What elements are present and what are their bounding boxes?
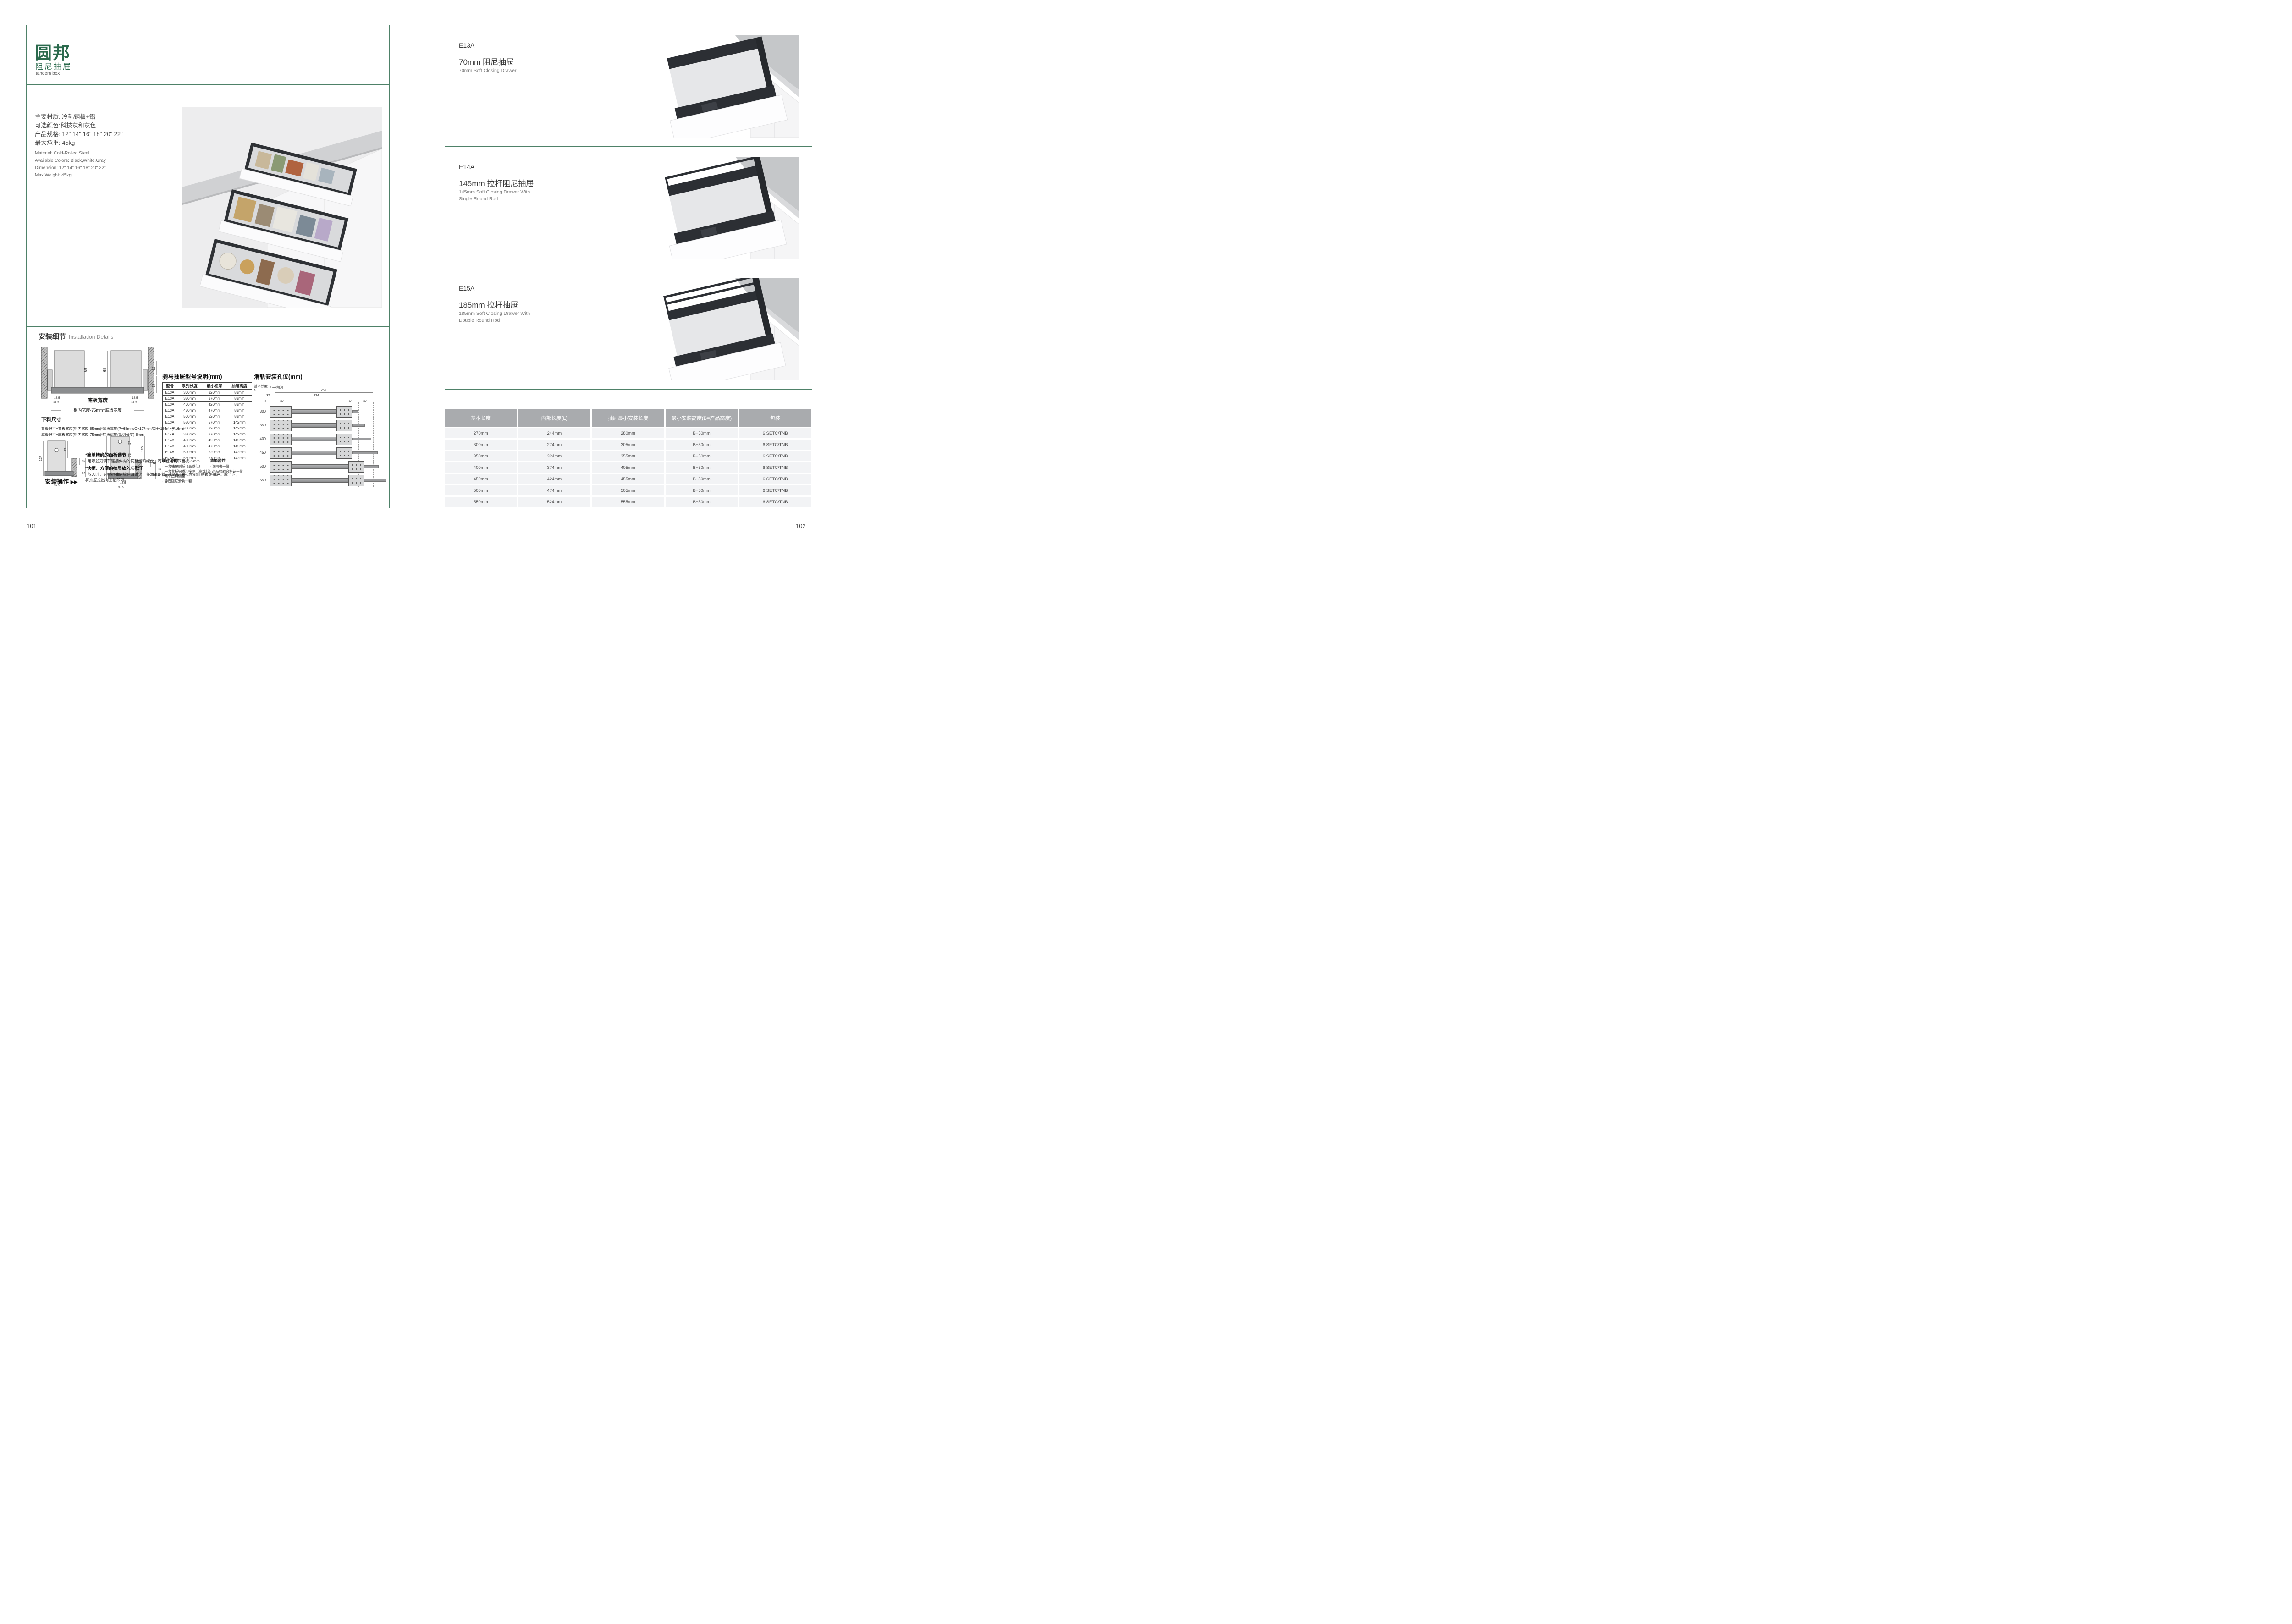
- dim-57: 57: [128, 441, 132, 445]
- install-title-zh: 安装细节: [39, 333, 66, 341]
- table-row: E14A 500mm 520mm 142mm: [163, 449, 252, 455]
- cell-min-install-height: B+50mm: [666, 440, 738, 450]
- cell-depth: 520mm: [202, 413, 227, 419]
- cell-basic-length: 400mm: [445, 462, 517, 473]
- rail-extension: [352, 410, 358, 413]
- table-row: 300mm 274mm 305mm B+50mm 6 SETC/TNB: [445, 440, 811, 450]
- dim-37-5-left: 37.5: [53, 401, 59, 404]
- dim-256: 256: [321, 389, 326, 392]
- spec-table-header: 基本长度 内部长度(L) 抽屉最小安装长度 最小安装高度(B=产品高度) 包装: [445, 409, 811, 427]
- section-divider: [27, 326, 389, 327]
- section-title-zh: 185mm 拉杆抽屉: [459, 298, 518, 310]
- section-title-zh: 70mm 阻尼抽屉: [459, 55, 514, 67]
- cell-depth: 470mm: [202, 407, 227, 413]
- cell-basic-length: 500mm: [445, 485, 517, 495]
- cell-inner-length: 274mm: [518, 440, 591, 450]
- dim-37: 37: [266, 394, 270, 397]
- model-code: E15A: [459, 285, 474, 292]
- spec-line: Dimension: 12" 14" 16" 18" 20" 22": [35, 165, 106, 172]
- cell-height: 142mm: [227, 443, 252, 449]
- cell-depth: 470mm: [202, 443, 227, 449]
- cell-inner-length: 324mm: [518, 451, 591, 461]
- dim-line-256: [275, 392, 373, 393]
- dim-127: 127: [39, 456, 43, 461]
- front-bracket: [270, 447, 292, 459]
- cell-packing: 6 SETC/TNB: [739, 485, 811, 495]
- product-photo-e15a: [641, 278, 799, 380]
- cell-packing: 6 SETC/TNB: [739, 440, 811, 450]
- table-row: E14A 300mm 320mm 142mm: [163, 425, 252, 431]
- cabinet-front-edge-label: 柜子前沿: [270, 385, 283, 390]
- accessories-title: 装箱附件: [210, 458, 256, 463]
- specs-zh: 主要材质: 冷轧钢板+铝 可选颜色:科技灰和灰色 产品规格: 12" 14" 1…: [35, 112, 123, 147]
- install-title-en: Installation Details: [69, 334, 113, 340]
- table-row: 550mm 524mm 555mm B+50mm 6 SETC/TNB: [445, 497, 811, 507]
- rail-extension: [352, 451, 378, 454]
- cell-height: 142mm: [227, 419, 252, 425]
- spec-line: 可选颜色:科技灰和灰色: [35, 121, 123, 130]
- cell-min-install-height: B+50mm: [666, 451, 738, 461]
- rail-axis-label: 基本长度 N L: [254, 384, 268, 392]
- model-table-title: 骑马抽屉型号说明(mm): [162, 372, 252, 380]
- cell-depth: 320mm: [202, 425, 227, 431]
- spec-line: 产品规格: 12" 14" 16" 18" 20" 22": [35, 130, 123, 138]
- dim-54: 54: [152, 383, 156, 387]
- cell-height: 83mm: [227, 413, 252, 419]
- cell-model: E14A: [163, 431, 177, 437]
- rail-row-350: 350: [254, 419, 389, 433]
- dim-46: 46: [38, 380, 39, 385]
- list-item: · 一套背板钢质连接件（高或低）: [162, 469, 213, 474]
- cell-model: E13A: [163, 407, 177, 413]
- rail-diagram-title: 滑轨安装孔位(mm): [254, 372, 389, 380]
- section-title-en: 70mm Soft Closing Drawer: [459, 67, 516, 74]
- dim-16-5-left: 16.5: [54, 396, 60, 400]
- table-row: E14A 450mm 470mm 142mm: [163, 443, 252, 449]
- cell-packing: 6 SETC/TNB: [739, 462, 811, 473]
- cell-model: E13A: [163, 390, 177, 396]
- col-header: 最小柜深: [202, 383, 227, 390]
- dim-68-left: 68: [83, 368, 88, 372]
- col-header: 系列长度: [177, 383, 202, 390]
- cell-basic-length: 300mm: [445, 440, 517, 450]
- table-row: E13A 500mm 520mm 83mm: [163, 413, 252, 419]
- cell-packing: 6 SETC/TNB: [739, 451, 811, 461]
- rail-row-300: 300: [254, 405, 389, 419]
- cell-min-install-height: B+50mm: [666, 428, 738, 438]
- model-code: E13A: [459, 42, 474, 49]
- cell-model: E13A: [163, 419, 177, 425]
- spec-table: 基本长度 内部长度(L) 抽屉最小安装长度 最小安装高度(B=产品高度) 包装 …: [445, 409, 811, 508]
- list-item: · 两个塑料侧盖: [162, 474, 213, 479]
- dim-77: 77: [64, 448, 67, 451]
- model-code: E14A: [459, 163, 474, 171]
- dim-line-224: [275, 398, 358, 398]
- cell-basic-length: 450mm: [445, 474, 517, 484]
- page-number-left: 101: [27, 523, 37, 529]
- table-row: E13A 400mm 420mm 83mm: [163, 402, 252, 407]
- cell-height: 142mm: [227, 431, 252, 437]
- list-item: · 说明书一份: [210, 464, 256, 469]
- rear-bracket: [336, 406, 352, 418]
- spec-line: 主要材质: 冷轧钢板+铝: [35, 112, 123, 121]
- cell-min-install-length: 280mm: [592, 428, 664, 438]
- rear-bracket: [336, 447, 352, 459]
- product-photo-cabinet: [182, 107, 382, 308]
- cell-basic-length: 350mm: [445, 451, 517, 461]
- page-right: E13A 70mm 阻尼抽屉 70mm Soft Closing Drawer: [445, 25, 812, 390]
- cell-length: 350mm: [177, 396, 202, 402]
- cell-inner-length: 374mm: [518, 462, 591, 473]
- install-title: 安装细节Installation Details: [39, 331, 113, 341]
- section-title-zh: 145mm 拉杆阻尼抽屉: [459, 177, 534, 188]
- cell-min-install-height: B+50mm: [666, 474, 738, 484]
- col-header: 内部长度(L): [518, 409, 591, 427]
- cell-inner-length: 524mm: [518, 497, 591, 507]
- operation-arrows-icon: ▶▶: [71, 479, 77, 485]
- accessories-block: 装箱附件 · 说明书一份 · 产品检验合格证一份: [210, 458, 256, 474]
- rail-bar: [291, 464, 349, 469]
- cell-length: 350mm: [177, 431, 202, 437]
- col-header: 包装: [739, 409, 811, 427]
- brand-subtitle: 阻尼抽屉: [35, 60, 72, 72]
- cell-height: 83mm: [227, 396, 252, 402]
- cell-model: E13A: [163, 402, 177, 407]
- front-bracket: [270, 461, 292, 473]
- cell-inner-length: 424mm: [518, 474, 591, 484]
- cell-min-install-length: 355mm: [592, 451, 664, 461]
- rail-row-500: 500: [254, 460, 389, 474]
- rear-bracket: [336, 420, 352, 431]
- dim-32: 32: [363, 400, 367, 403]
- model-table-header-row: 型号 系列长度 最小柜深 抽屉高度: [163, 383, 252, 390]
- cell-length: 400mm: [177, 402, 202, 407]
- cell-length: 500mm: [177, 449, 202, 455]
- cell-length: 300mm: [177, 390, 202, 396]
- rail-extension: [364, 479, 386, 482]
- rail-row-400: 400: [254, 433, 389, 446]
- dim-9: 9: [264, 400, 266, 403]
- cell-depth: 370mm: [202, 431, 227, 437]
- table-row: E13A 350mm 370mm 83mm: [163, 396, 252, 402]
- cell-basic-length: 550mm: [445, 497, 517, 507]
- cell-packing: 6 SETC/TNB: [739, 474, 811, 484]
- dim-37-5: 37.5: [118, 486, 124, 489]
- section-title-en: 185mm Soft Closing Drawer With Double Ro…: [459, 310, 530, 324]
- list-item: · 静音阻尼滑轨一套: [162, 479, 213, 484]
- dim-224: 224: [314, 394, 319, 397]
- col-header: 最小安装高度(B=产品高度): [666, 409, 738, 427]
- rail-bar: [291, 423, 337, 428]
- cell-model: E14A: [163, 449, 177, 455]
- cell-min-install-height: B+50mm: [666, 485, 738, 495]
- cell-min-install-height: B+50mm: [666, 497, 738, 507]
- cell-min-install-length: 505mm: [592, 485, 664, 495]
- page-left: 圆邦 阻尼抽屉 tandem box 主要材质: 冷轧钢板+铝 可选颜色:科技灰…: [26, 25, 390, 508]
- rail-extension: [364, 465, 379, 468]
- cell-length: 400mm: [177, 437, 202, 443]
- table-row: E13A 300mm 320mm 83mm: [163, 390, 252, 396]
- col-header: 抽屉高度: [227, 383, 252, 390]
- table-row: E13A 550mm 570mm 142mm: [163, 419, 252, 425]
- model-table-block: 骑马抽屉型号说明(mm) 型号 系列长度 最小柜深 抽屉高度 E13A 300m…: [162, 372, 252, 461]
- rail-extension: [352, 424, 365, 427]
- cell-inner-length: 474mm: [518, 485, 591, 495]
- cell-min-install-height: B+50mm: [666, 462, 738, 473]
- spec-line: Available Colors: Black,White,Gray: [35, 157, 106, 165]
- dim-32: 32: [152, 366, 156, 370]
- product-photo-e13a: [641, 35, 799, 138]
- header-divider: [27, 84, 389, 85]
- cell-depth: 370mm: [202, 396, 227, 402]
- cell-model: E13A: [163, 396, 177, 402]
- components-title: 组件说明: [162, 458, 213, 463]
- cell-depth: 420mm: [202, 437, 227, 443]
- dim-37-5-right: 37.5: [131, 401, 137, 404]
- rail-bar: [291, 409, 337, 414]
- cell-depth: 570mm: [202, 419, 227, 425]
- cell-depth: 520mm: [202, 449, 227, 455]
- cell-min-install-length: 405mm: [592, 462, 664, 473]
- dim-68-right: 68: [103, 368, 107, 372]
- table-row: E14A 350mm 370mm 142mm: [163, 431, 252, 437]
- section-e13a: E13A 70mm 阻尼抽屉 70mm Soft Closing Drawer: [445, 25, 812, 146]
- col-header: 型号: [163, 383, 177, 390]
- cross-section-diagram: 68 68 46 32 54 16.5 37.5 16.5 37.5 底板宽度 …: [38, 343, 158, 416]
- table-row: E14A 400mm 420mm 142mm: [163, 437, 252, 443]
- table-row: 400mm 374mm 405mm B+50mm 6 SETC/TNB: [445, 462, 811, 473]
- page-number-right: 102: [796, 523, 806, 529]
- cell-height: 142mm: [227, 449, 252, 455]
- spec-line: Material: Cold-Rolled Steel: [35, 150, 106, 157]
- cell-length: 500mm: [177, 413, 202, 419]
- list-item: · 产品检验合格证一份: [210, 469, 256, 474]
- cell-length: 300mm: [177, 425, 202, 431]
- table-row: 450mm 424mm 455mm B+50mm 6 SETC/TNB: [445, 474, 811, 484]
- brand-subtitle-en: tandem box: [36, 71, 60, 76]
- front-bracket: [270, 475, 292, 486]
- spec-line: Max Weight: 45kg: [35, 172, 106, 179]
- list-item: · 一套抽屉侧板（高或低）: [162, 464, 213, 469]
- cell-min-install-length: 305mm: [592, 440, 664, 450]
- cell-model: E14A: [163, 425, 177, 431]
- cell-model: E14A: [163, 443, 177, 449]
- bottom-plate-label: 底板宽度: [88, 397, 108, 403]
- dim-16-5-right: 16.5: [132, 396, 138, 400]
- cell-depth: 320mm: [202, 390, 227, 396]
- cell-height: 83mm: [227, 407, 252, 413]
- dim-32: 32: [280, 400, 284, 403]
- cell-depth: 420mm: [202, 402, 227, 407]
- rail-bar: [291, 478, 349, 483]
- cell-height: 142mm: [227, 425, 252, 431]
- model-table: 型号 系列长度 最小柜深 抽屉高度 E13A 300mm 320mm 83mm …: [162, 382, 252, 461]
- section-title-en: 145mm Soft Closing Drawer With Single Ro…: [459, 189, 530, 203]
- section-e15a: E15A 185mm 拉杆抽屉 185mm Soft Closing Drawe…: [445, 268, 812, 389]
- rear-bracket: [336, 434, 352, 445]
- cell-inner-length: 244mm: [518, 428, 591, 438]
- cell-min-install-length: 555mm: [592, 497, 664, 507]
- table-row: 270mm 244mm 280mm B+50mm 6 SETC/TNB: [445, 428, 811, 438]
- product-photo-e14a: [641, 157, 799, 259]
- rail-bar: [291, 437, 337, 441]
- table-row: E13A 450mm 470mm 83mm: [163, 407, 252, 413]
- catalog-spread: 圆邦 阻尼抽屉 tandem box 主要材质: 冷轧钢板+铝 可选颜色:科技灰…: [0, 0, 830, 541]
- width-formula-label: 柜内宽度-75mm=底板宽度: [73, 407, 121, 413]
- cell-packing: 6 SETC/TNB: [739, 428, 811, 438]
- rear-bracket: [348, 475, 364, 486]
- cell-min-install-length: 455mm: [592, 474, 664, 484]
- cell-height: 83mm: [227, 390, 252, 396]
- col-header: 基本长度: [445, 409, 517, 427]
- table-row: 500mm 474mm 505mm B+50mm 6 SETC/TNB: [445, 485, 811, 495]
- rail-rows: 300 350 400: [254, 405, 389, 488]
- rail-row-550: 550: [254, 474, 389, 488]
- cell-model: E14A: [163, 437, 177, 443]
- rail-bar: [291, 451, 337, 455]
- specs-en: Material: Cold-Rolled Steel Available Co…: [35, 150, 106, 179]
- cell-length: 450mm: [177, 443, 202, 449]
- rear-bracket: [348, 461, 364, 473]
- front-bracket: [270, 420, 292, 431]
- components-block: 组件说明 · 一套抽屉侧板（高或低） · 一套背板钢质连接件（高或低） · 两个…: [162, 458, 213, 484]
- cell-length: 550mm: [177, 419, 202, 425]
- rail-row-450: 450: [254, 446, 389, 460]
- rail-diagram-canvas: 基本长度 N L 柜子前沿 256 224 37 9 32 32 32: [254, 381, 389, 490]
- table-row: 350mm 324mm 355mm B+50mm 6 SETC/TNB: [445, 451, 811, 461]
- spec-line: 最大承重: 45kg: [35, 138, 123, 147]
- cell-height: 142mm: [227, 437, 252, 443]
- cell-packing: 6 SETC/TNB: [739, 497, 811, 507]
- col-header: 抽屉最小安装长度: [592, 409, 664, 427]
- install-operation-label: 安装操作 ▶▶: [45, 477, 77, 485]
- cell-height: 83mm: [227, 402, 252, 407]
- front-bracket: [270, 406, 292, 418]
- dim-32: 32: [348, 400, 352, 403]
- cell-length: 450mm: [177, 407, 202, 413]
- cell-basic-length: 270mm: [445, 428, 517, 438]
- rail-hole-diagram: 滑轨安装孔位(mm) 基本长度 N L 柜子前沿 256 224 37 9 32…: [254, 372, 389, 489]
- front-bracket: [270, 434, 292, 445]
- rail-extension: [352, 438, 371, 440]
- section-e14a: E14A 145mm 拉杆阻尼抽屉 145mm Soft Closing Dra…: [445, 146, 812, 268]
- cell-model: E13A: [163, 413, 177, 419]
